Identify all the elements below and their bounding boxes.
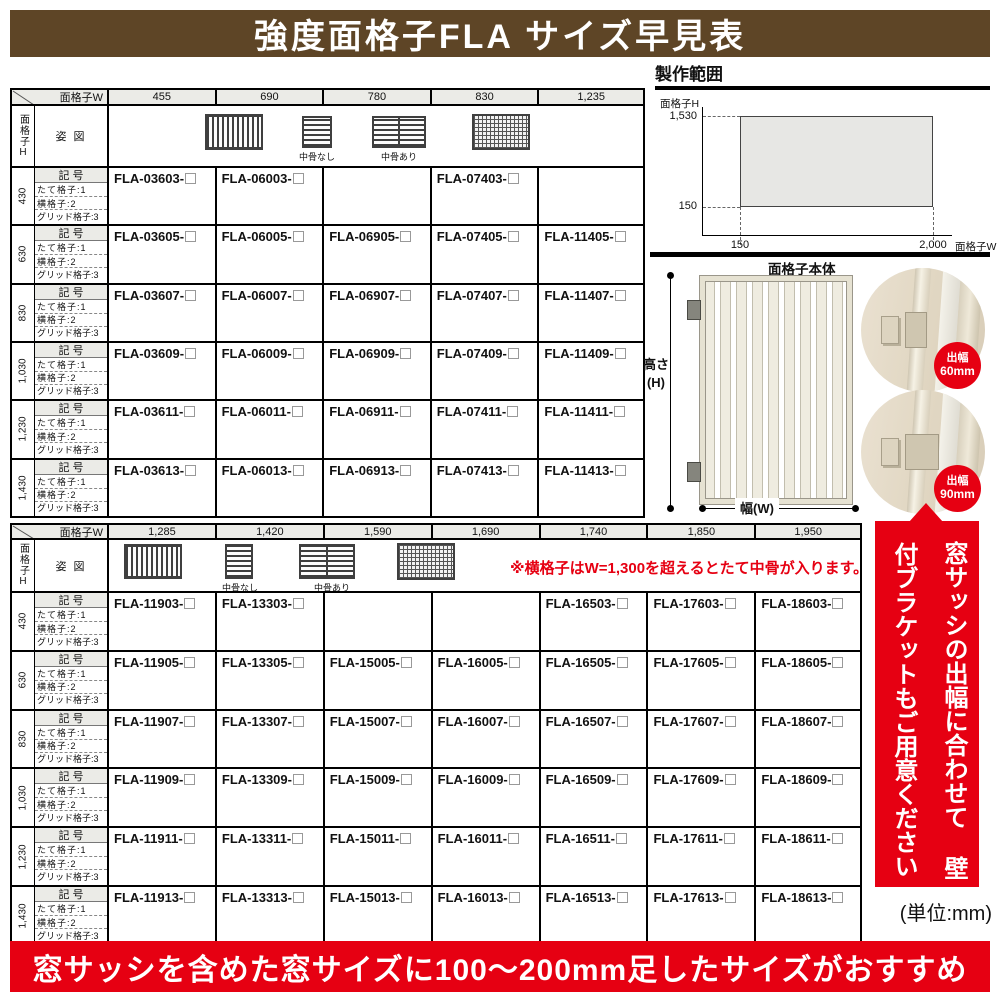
code-header-label: 記 号 [35,285,107,300]
code-cell: FLA-11909- [109,769,217,826]
product-code: FLA-18607- [761,714,831,729]
code-cell: FLA-16509- [541,769,649,826]
grille-type-label: たて格子:1 [35,902,107,915]
product-code: FLA-11907- [114,714,183,729]
product-code: FLA-13307- [222,714,292,729]
width-header-1,235: 1,235 [539,90,643,104]
product-code: FLA-03613- [114,463,184,478]
product-code: FLA-17605- [653,655,723,670]
wall-bracket [687,300,701,320]
grille-type-label: グリッド格子:3 [35,634,107,647]
code-cell: FLA-07413- [432,460,540,516]
grille-type-label: 横格子:2 [35,915,107,928]
grille-type-label: グリッド格子:3 [35,501,107,514]
product-code: FLA-11411- [544,404,613,419]
guide-line [703,207,740,208]
product-code: FLA-07413- [437,463,507,478]
type-number-box [293,892,304,903]
photo-detail [881,316,899,344]
type-number-box [185,465,196,476]
product-code: FLA-03609- [114,346,184,361]
type-number-box [615,348,626,359]
width-header-1,740: 1,740 [541,525,649,538]
type-number-box [293,774,304,785]
chart-y-axis-label: 面格子H [660,96,699,111]
code-cell: FLA-13303- [217,593,325,650]
table-row: 1,230記 号たて格子:1横格子:2グリッド格子:3FLA-11911-FLA… [12,828,860,887]
type-number-box [185,231,196,242]
product-code: FLA-16011- [438,831,507,846]
corner-width-label: 面格子W [60,525,103,538]
type-number-box [292,833,303,844]
product-code: FLA-18609- [761,772,831,787]
table-header-row: 面格子W4556907808301,235 [12,90,643,106]
type-number-box [832,774,843,785]
code-cell: FLA-16503- [541,593,649,650]
table-row: 1,030記 号たて格子:1横格子:2グリッド格子:3FLA-11909-FLA… [12,769,860,828]
size-table-small-widths: 面格子W4556907808301,235面格子H姿 図中骨なし中骨あり430記… [10,88,645,518]
product-code: FLA-16505- [546,655,616,670]
type-number-box [508,290,519,301]
grille-drawing [700,276,852,504]
type-number-box [184,716,195,727]
product-code: FLA-07409- [437,346,507,361]
code-cell: FLA-11407- [539,285,643,341]
mid-bone-none-label: 中骨なし [215,581,265,591]
type-number-box [401,774,412,785]
code-cell: FLA-13305- [217,652,325,709]
code-cell: FLA-18603- [756,593,860,650]
grille-type-label: たて格子:1 [35,241,107,254]
type-number-box [508,833,519,844]
type-number-box [184,833,195,844]
grille-type-label: 横格子:2 [35,797,107,810]
code-cell: FLA-13313- [217,887,325,944]
code-cell: FLA-07403- [432,168,540,224]
code-cell: FLA-18611- [756,828,860,885]
row-height-cell: 1,230 [12,828,35,885]
product-code: FLA-17607- [653,714,723,729]
table-row: 430記 号たて格子:1横格子:2グリッド格子:3FLA-03603-FLA-0… [12,168,643,226]
type-number-box [400,290,411,301]
code-cell: FLA-06007- [217,285,325,341]
width-header-1,950: 1,950 [756,525,860,538]
type-number-box [614,406,625,417]
product-code: FLA-16013- [438,890,508,905]
product-code: FLA-13305- [222,655,292,670]
vertical-grille-icon [124,544,182,579]
width-header-690: 690 [217,90,325,104]
width-dimension-label: 幅(W) [735,498,779,517]
code-cell: FLA-15011- [325,828,433,885]
product-code: FLA-11903- [114,596,183,611]
type-number-box [293,598,304,609]
shape-row: 面格子H姿 図中骨なし中骨あり※横格子はW=1,300を超えるとたて中骨が入りま… [12,540,860,593]
code-cell: FLA-03607- [109,285,217,341]
type-number-box [185,173,196,184]
product-code: FLA-15009- [330,772,400,787]
type-number-box [293,173,304,184]
type-number-box [725,657,736,668]
code-cell: FLA-16505- [541,652,649,709]
wall-bracket [687,462,701,482]
product-body-label: 面格子本体 [768,258,836,278]
product-code: FLA-17611- [653,831,722,846]
row-label-cell: 記 号たて格子:1横格子:2グリッド格子:3 [35,711,109,768]
type-number-box [617,716,628,727]
type-number-box [293,348,304,359]
catalog-page: 強度面格子FLA サイズ早見表 面格子W4556907808301,235面格子… [0,0,1000,1000]
product-code: FLA-07411- [437,404,506,419]
row-height-cell: 430 [12,593,35,650]
grille-type-label: 横格子:2 [35,196,107,209]
type-number-box [508,231,519,242]
type-number-box [509,774,520,785]
grille-height-axis-cell: 面格子H [12,106,35,166]
code-cell: FLA-06011- [217,401,325,457]
photo-detail [905,434,939,470]
product-code: FLA-13303- [222,596,292,611]
grille-height-axis-label: 面格子H [16,543,31,588]
grille-height-axis-cell: 面格子H [12,540,35,591]
product-code: FLA-06011- [222,404,291,419]
code-header-label: 記 号 [35,887,107,902]
product-code: FLA-16513- [546,890,616,905]
code-cell: FLA-11405- [539,226,643,282]
type-number-box [615,465,626,476]
code-cell: FLA-15013- [325,887,433,944]
product-code: FLA-11911- [114,831,183,846]
code-cell [325,593,433,650]
row-height-label: 430 [18,188,29,205]
grille-height-axis-label: 面格子H [16,114,31,159]
code-header-label: 記 号 [35,769,107,784]
type-number-box [293,465,304,476]
grille-type-label: 横格子:2 [35,313,107,326]
product-code: FLA-17603- [653,596,723,611]
product-code: FLA-11409- [544,346,613,361]
type-number-box [617,774,628,785]
code-cell: FLA-07407- [432,285,540,341]
code-header-label: 記 号 [35,711,107,726]
vertical-grille-icon [205,114,263,150]
product-code: FLA-15011- [330,831,399,846]
table-row: 1,030記 号たて格子:1横格子:2グリッド格子:3FLA-03609-FLA… [12,343,643,401]
code-cell: FLA-03605- [109,226,217,282]
code-cell: FLA-18605- [756,652,860,709]
table-row: 830記 号たて格子:1横格子:2グリッド格子:3FLA-03607-FLA-0… [12,285,643,343]
type-number-box [725,892,736,903]
horizontal-grille-midbone-icon [299,544,355,579]
product-code: FLA-06009- [222,346,292,361]
grille-type-label: たて格子:1 [35,726,107,739]
product-code: FLA-16007- [438,714,508,729]
product-code: FLA-13311- [222,831,291,846]
divider [650,252,990,257]
bottom-banner: 窓サッシを含めた窓サイズに100〜200mm足したサイズがおすすめ [10,941,990,992]
type-number-box [400,465,411,476]
code-cell: FLA-03613- [109,460,217,516]
product-code: FLA-15007- [330,714,400,729]
code-cell: FLA-16007- [433,711,541,768]
product-code: FLA-15005- [330,655,400,670]
row-height-cell: 630 [12,652,35,709]
code-cell [324,168,432,224]
unit-note: (単位:mm) [820,897,992,926]
code-cell: FLA-11903- [109,593,217,650]
code-cell: FLA-06913- [324,460,432,516]
chart-tick-ymin: 150 [655,200,697,212]
type-number-box [401,892,412,903]
page-title: 強度面格子FLA サイズ早見表 [10,10,990,57]
product-code: FLA-18603- [761,596,831,611]
code-cell: FLA-07411- [432,401,540,457]
height-dimension-line [670,276,671,508]
code-header-label: 記 号 [35,460,107,475]
code-cell: FLA-06013- [217,460,325,516]
table-row: 830記 号たて格子:1横格子:2グリッド格子:3FLA-11907-FLA-1… [12,711,860,770]
row-height-cell: 1,030 [12,769,35,826]
code-cell: FLA-15007- [325,711,433,768]
type-number-box [401,657,412,668]
table-corner-cell: 面格子W [12,525,109,538]
grille-type-label: たて格子:1 [35,300,107,313]
product-code: FLA-16509- [546,772,616,787]
product-code: FLA-13309- [222,772,292,787]
type-number-box [184,406,195,417]
code-header-label: 記 号 [35,343,107,358]
type-number-box [400,231,411,242]
code-cell: FLA-06005- [217,226,325,282]
type-number-box [400,348,411,359]
type-number-box [293,716,304,727]
grille-type-label: 横格子:2 [35,429,107,442]
grille-type-label: たて格子:1 [35,358,107,371]
mid-bone-note: ※横格子はW=1,300を超えるとたて中骨が入ります。 [510,557,860,578]
product-code: FLA-17613- [653,890,723,905]
code-cell: FLA-11413- [539,460,643,516]
shape-label-cell: 姿 図 [35,106,109,166]
callout-pointer [909,503,943,522]
table-row: 1,430記 号たて格子:1横格子:2グリッド格子:3FLA-03613-FLA… [12,460,643,516]
type-number-box [184,598,195,609]
code-cell: FLA-11905- [109,652,217,709]
row-height-cell: 1,430 [12,460,35,516]
chart-tick-ymax: 1,530 [655,110,697,122]
row-height-label: 1,230 [18,417,29,442]
type-number-box [401,716,412,727]
row-height-cell: 830 [12,711,35,768]
code-cell: FLA-06003- [217,168,325,224]
corner-width-label: 面格子W [60,90,103,104]
code-cell: FLA-03609- [109,343,217,399]
mid-bone-none-label: 中骨なし [292,150,342,163]
width-header-1,590: 1,590 [325,525,433,538]
type-number-box [615,231,626,242]
product-code: FLA-06013- [222,463,292,478]
type-number-box [293,231,304,242]
type-number-box [616,833,627,844]
width-header-1,850: 1,850 [648,525,756,538]
grille-type-label: たて格子:1 [35,183,107,196]
product-code: FLA-11413- [544,463,613,478]
width-header-1,690: 1,690 [433,525,541,538]
code-cell: FLA-18609- [756,769,860,826]
code-cell: FLA-17605- [648,652,756,709]
type-number-box [617,892,628,903]
grille-type-label: たて格子:1 [35,416,107,429]
width-header-1,420: 1,420 [217,525,325,538]
grille-type-label: たて格子:1 [35,475,107,488]
row-label-cell: 記 号たて格子:1横格子:2グリッド格子:3 [35,652,109,709]
type-number-box [400,833,411,844]
type-number-box [509,657,520,668]
horizontal-grille-icon [225,544,253,579]
width-header-1,285: 1,285 [109,525,217,538]
chart-tick-xmax: 2,000 [914,239,952,251]
type-number-box [832,657,843,668]
table-header-row: 面格子W1,2851,4201,5901,6901,7401,8501,950 [12,525,860,540]
shape-images-cell: 中骨なし中骨あり※横格子はW=1,300を超えるとたて中骨が入ります。 [109,540,860,591]
code-cell: FLA-17603- [648,593,756,650]
code-header-label: 記 号 [35,652,107,667]
row-height-label: 1,430 [18,903,29,928]
product-code: FLA-11407- [544,288,613,303]
table-row: 630記 号たて格子:1横格子:2グリッド格子:3FLA-11905-FLA-1… [12,652,860,711]
code-cell: FLA-18607- [756,711,860,768]
code-cell: FLA-06909- [324,343,432,399]
type-number-box [724,833,735,844]
grille-type-label: グリッド格子:3 [35,928,107,941]
product-code: FLA-07405- [437,229,507,244]
chart-tick-xmin: 150 [725,239,755,251]
code-header-label: 記 号 [35,593,107,608]
row-label-cell: 記 号たて格子:1横格子:2グリッド格子:3 [35,769,109,826]
product-code: FLA-11913- [114,890,183,905]
product-code: FLA-07407- [437,288,507,303]
code-header-label: 記 号 [35,401,107,416]
row-label-cell: 記 号たて格子:1横格子:2グリッド格子:3 [35,887,109,944]
grille-type-label: 横格子:2 [35,621,107,634]
type-number-box [292,406,303,417]
row-label-cell: 記 号たて格子:1横格子:2グリッド格子:3 [35,593,109,650]
code-cell: FLA-17609- [648,769,756,826]
product-code: FLA-11405- [544,229,613,244]
diagonal-line [12,525,35,538]
row-height-cell: 1,030 [12,343,35,399]
code-cell: FLA-11411- [539,401,643,457]
grille-type-label: 横格子:2 [35,739,107,752]
type-number-box [184,657,195,668]
horizontal-grille-icon [302,116,332,148]
guide-line [703,116,740,117]
product-code: FLA-16005- [438,655,508,670]
row-height-cell: 830 [12,285,35,341]
type-number-box [832,716,843,727]
code-cell: FLA-13307- [217,711,325,768]
mid-bone-yes-label: 中骨あり [305,581,359,591]
code-cell: FLA-15005- [325,652,433,709]
row-height-label: 430 [18,613,29,630]
grille-type-label: たて格子:1 [35,667,107,680]
table-row: 1,230記 号たて格子:1横格子:2グリッド格子:3FLA-03611-FLA… [12,401,643,459]
code-cell: FLA-16511- [541,828,649,885]
production-range-area [740,116,933,207]
divider [655,86,990,90]
row-height-label: 1,030 [18,359,29,384]
product-code: FLA-18605- [761,655,831,670]
product-code: FLA-06907- [329,288,399,303]
table-corner-cell: 面格子W [12,90,109,104]
type-number-box [725,598,736,609]
product-code: FLA-18611- [761,831,830,846]
type-number-box [615,290,626,301]
code-cell: FLA-06907- [324,285,432,341]
grille-type-label: たて格子:1 [35,784,107,797]
table-row: 1,430記 号たて格子:1横格子:2グリッド格子:3FLA-11913-FLA… [12,887,860,944]
row-height-cell: 630 [12,226,35,282]
row-label-cell: 記 号たて格子:1横格子:2グリッド格子:3 [35,168,109,224]
type-number-box [184,774,195,785]
product-code: FLA-06913- [329,463,399,478]
code-cell: FLA-06905- [324,226,432,282]
product-code: FLA-16511- [546,831,615,846]
grille-type-label: 横格子:2 [35,371,107,384]
type-number-box [832,833,843,844]
code-cell: FLA-11907- [109,711,217,768]
grille-type-label: グリッド格子:3 [35,869,107,882]
row-label-cell: 記 号たて格子:1横格子:2グリッド格子:3 [35,401,109,457]
product-code: FLA-17609- [653,772,723,787]
row-height-label: 830 [18,731,29,748]
width-header-780: 780 [324,90,432,104]
code-cell: FLA-06009- [217,343,325,399]
code-header-label: 記 号 [35,828,107,843]
row-height-label: 830 [18,304,29,321]
diagonal-line [12,90,35,104]
type-number-box [185,348,196,359]
row-height-cell: 1,230 [12,401,35,457]
code-cell [433,593,541,650]
grille-type-label: たて格子:1 [35,608,107,621]
side-banner-line1: 窓サッシの出幅に合わせて [940,541,967,829]
grille-type-label: グリッド格子:3 [35,384,107,397]
type-number-box [293,290,304,301]
type-number-box [508,465,519,476]
product-code: FLA-03607- [114,288,184,303]
type-number-box [185,290,196,301]
photo-detail [905,312,927,348]
type-number-box [832,598,843,609]
type-number-box [184,892,195,903]
code-cell: FLA-17613- [648,887,756,944]
grille-type-label: グリッド格子:3 [35,267,107,280]
production-range-title: 製作範囲 [655,60,723,85]
grid-grille-icon [397,543,455,580]
row-height-label: 1,430 [18,475,29,500]
dimension-dot [667,505,674,512]
row-label-cell: 記 号たて格子:1横格子:2グリッド格子:3 [35,285,109,341]
width-dimension-line [703,508,855,509]
product-code: FLA-07403- [437,171,507,186]
table-row: 430記 号たて格子:1横格子:2グリッド格子:3FLA-11903-FLA-1… [12,593,860,652]
type-number-box [509,892,520,903]
product-code: FLA-06911- [329,404,398,419]
dimension-dot [699,505,706,512]
code-cell: FLA-16009- [433,769,541,826]
code-cell: FLA-16011- [433,828,541,885]
product-code: FLA-03611- [114,404,183,419]
